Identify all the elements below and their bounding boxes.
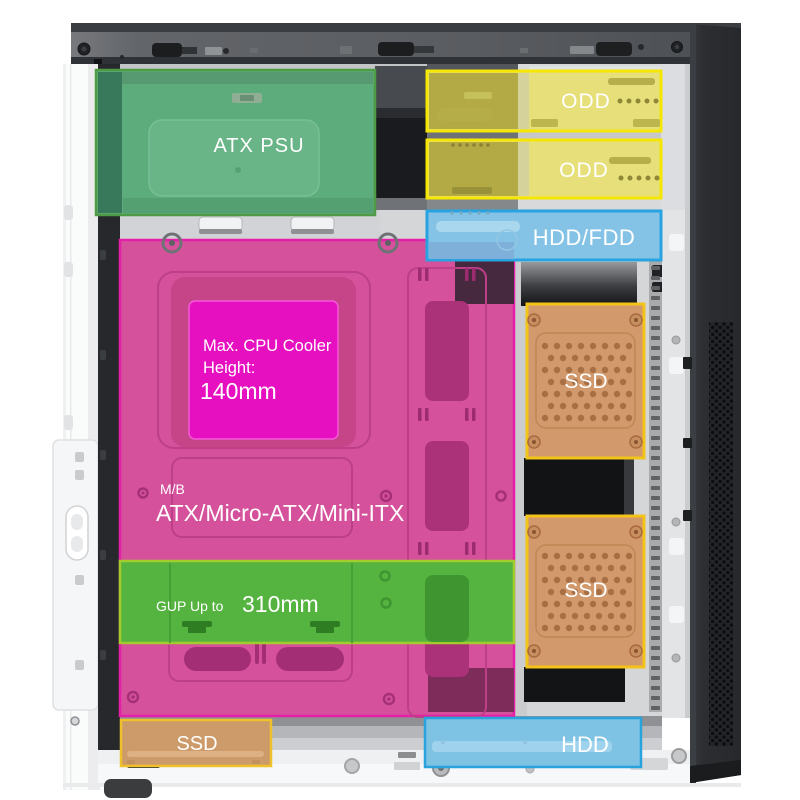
svg-text:HDD: HDD	[561, 732, 609, 757]
svg-text:140mm: 140mm	[200, 378, 277, 404]
svg-text:ODD: ODD	[561, 90, 611, 113]
svg-text:GUP Up to: GUP Up to	[156, 598, 224, 614]
svg-text:M/B: M/B	[160, 481, 185, 497]
svg-text:310mm: 310mm	[242, 591, 319, 617]
svg-text:SSD: SSD	[564, 579, 607, 602]
svg-text:Height:: Height:	[203, 359, 255, 377]
svg-text:SSD: SSD	[564, 370, 607, 393]
svg-text:Max. CPU Cooler: Max. CPU Cooler	[203, 337, 332, 355]
svg-text:SSD: SSD	[176, 733, 217, 755]
svg-text:HDD/FDD: HDD/FDD	[533, 225, 636, 250]
svg-text:ODD: ODD	[559, 159, 609, 182]
svg-text:ATX/Micro-ATX/Mini-ITX: ATX/Micro-ATX/Mini-ITX	[156, 500, 404, 526]
svg-text:ATX PSU: ATX PSU	[213, 135, 304, 157]
